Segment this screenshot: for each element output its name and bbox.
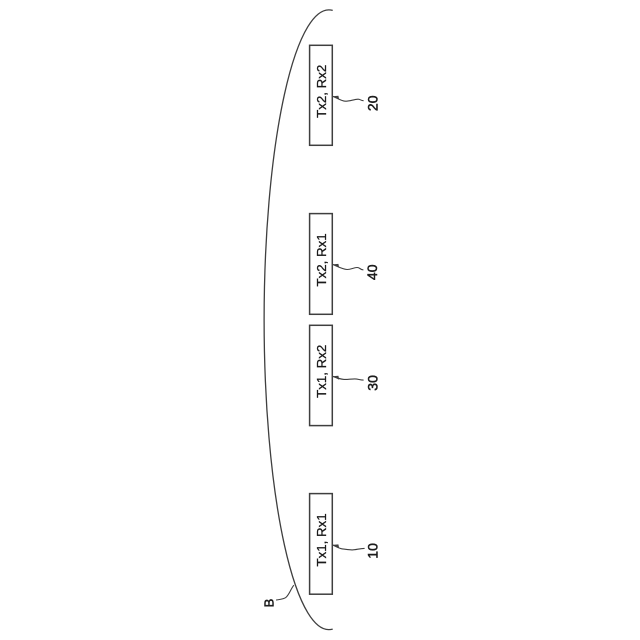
svg-text:30: 30 [364, 375, 380, 391]
svg-text:10: 10 [364, 543, 380, 559]
svg-text:Tx2, Rx2: Tx2, Rx2 [314, 65, 329, 118]
svg-text:B: B [262, 599, 277, 608]
svg-text:Tx1, Rx2: Tx1, Rx2 [314, 345, 329, 398]
svg-text:40: 40 [364, 264, 380, 280]
svg-text:Tx2, Rx1: Tx2, Rx1 [314, 233, 329, 286]
svg-text:Tx1, Rx1: Tx1, Rx1 [314, 513, 329, 566]
svg-text:20: 20 [364, 95, 380, 111]
